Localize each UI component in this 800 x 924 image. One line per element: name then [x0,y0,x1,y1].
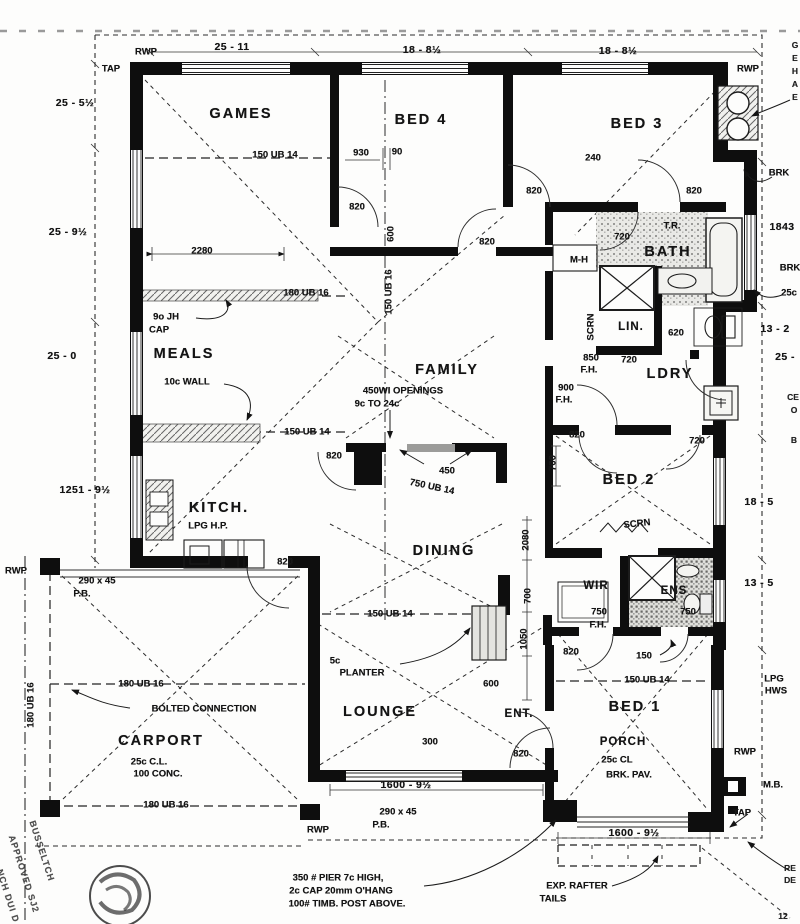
door-width-label: 620 [668,328,684,339]
dimension-label: 1843 [770,221,795,233]
room-label-porch: PORCH [600,736,647,748]
dimension-label: 750 [591,607,607,618]
room-label-bed2: BED 2 [603,472,656,488]
room-label-kitchen: KITCH. [189,500,249,516]
planter-note: PLANTER [340,668,385,679]
room-label-bed4: BED 4 [395,112,448,128]
dimension-label: 900 [558,383,574,394]
beam-note: 290 x 45 [79,576,116,587]
dimension-label: 600 [386,226,397,242]
pier-note: 2c CAP 20mm O'HANG [289,886,392,897]
beam-label: 180 UB 16 [26,682,37,727]
beam-label: 180 UB 16 [118,679,163,690]
dimension-label: 13 - 2 [760,323,789,335]
rwp-label: RWP [135,47,157,58]
rwp-label: RWP [737,64,759,75]
cap-note: CAP [149,325,169,336]
dimension-label: 25 - 0 [47,350,76,362]
door-width-label: 820 [479,237,495,248]
dimension-label: 2280 [191,246,212,257]
brk-note: BRK [780,263,800,274]
dimension-label: 750 [680,607,696,618]
dimension-label: 2080 [521,529,532,550]
room-label-bed3: BED 3 [611,116,664,132]
door-width-label: 820 [326,451,342,462]
porch-note: 25c CL [601,755,632,766]
dimension-label: 240 [585,153,601,164]
dimension-label: 1600 - 9½ [381,779,432,791]
room-label-linen: LIN. [618,321,644,333]
clipped-note: RE [784,863,796,873]
clipped-note: CE [787,392,799,402]
towel-rail-label: T.R. [664,221,681,232]
door-width-label: 820 [686,186,702,197]
rafter-note: EXP. RAFTER [546,881,608,892]
dimension-label: F.H. [590,620,607,631]
approval-stamp-text: NCH DUI D [0,868,21,924]
clipped-note: E [792,92,798,102]
clipped-note: B [791,435,797,445]
beam-label: 150 UB 14 [252,150,297,161]
dimension-label: 18 - 8½ [403,44,441,56]
beam-label: 180 UB 16 [283,288,328,299]
room-label-carport: CARPORT [118,733,204,749]
dimension-label: 25 - 11 [215,41,250,53]
beam-label: 150 UB 16 [384,269,395,314]
door-width-label: 820 [349,202,365,213]
rwp-label: RWP [5,566,27,577]
door-width-label: 720 [621,355,637,366]
rwp-label: RWP [734,747,756,758]
planter-note: 5c [330,656,341,667]
room-label-bath: BATH [644,244,691,260]
clipped-note: 25c [781,288,797,299]
mh-label: M-H [570,255,588,266]
beam-label: 150 UB 14 [367,609,412,620]
pier-note: 350 # PIER 7c HIGH, [293,873,384,884]
lpg-hws-label: HWS [765,686,787,697]
approval-stamp-text: BUSSELTCH [27,819,56,882]
dimension-label: 90 [392,147,403,158]
cap-note: 9o JH [153,312,179,323]
bolted-connection-note: BOLTED CONNECTION [152,704,257,715]
clipped-note: H [792,66,798,76]
screen-label: SCRN [623,517,651,531]
room-label-laundry: LDRY [647,366,694,382]
beam-label: 150 UB 14 [284,427,329,438]
door-width-label: 820 [563,647,579,658]
door-width-label: 720 [614,232,630,243]
door-width-label: 820 [569,430,585,441]
clipped-note: O [791,405,798,415]
lpg-note: LPG H.P. [188,521,227,532]
beam-note: P.B. [73,589,90,600]
dimension-label: 150 [636,651,652,662]
room-label-bed1: BED 1 [609,699,662,715]
rafter-note: TAILS [540,894,567,905]
brk-note: BRK [769,168,790,179]
dimension-label: 1251 - 9½ [60,484,111,496]
pier-note: 100# TIMB. POST ABOVE. [289,899,406,910]
door-width-label: 820 [513,749,529,760]
lpg-hws-label: LPG [764,674,784,685]
dimension-label: 25 - 9½ [49,226,87,238]
dimension-label: 600 [483,679,499,690]
dimension-label: F.H. [556,395,573,406]
dimension-label: 18 - 8½ [599,45,637,57]
clipped-note: DE [784,875,796,885]
room-label-lounge: LOUNGE [343,704,417,720]
dimension-label: 300 [422,737,438,748]
wall-note: 10c WALL [164,377,209,388]
room-label-entry: ENT. [505,708,534,720]
tap-label: TAP [102,64,120,75]
room-label-games: GAMES [209,106,272,122]
porch-note: BRK. PAV. [606,770,652,781]
openings-note: 9c TO 24c [355,399,400,410]
openings-note: 450WI OPENINGS [363,386,443,397]
clipped-note: E [792,53,798,63]
carport-note: 100 CONC. [133,769,182,780]
screen-label: SCRN [586,314,597,341]
dimension-label: 700 [548,455,559,471]
rwp-label: RWP [307,825,329,836]
room-label-ensuite: ENS [661,585,688,597]
beam-label: 150 UB 14 [624,675,669,686]
dimension-label: F.H. [581,365,598,376]
floor-plan-page: RWPTAP25 - 1118 - 8½18 - 8½RWPGEHAE25 - … [0,0,800,924]
room-label-wir: WIR [583,580,608,592]
door-width-label: 720 [689,436,705,447]
meter-box-label: M.B. [763,780,783,791]
dimension-label: 700 [523,588,534,604]
beam-label: 180 UB 16 [143,800,188,811]
annotation-layer: RWPTAP25 - 1118 - 8½18 - 8½RWPGEHAE25 - … [0,0,800,924]
carport-note: 25c C.L. [131,757,167,768]
dimension-label: 850 [583,353,599,364]
beam-label: 750 UB 14 [409,477,456,497]
dimension-label: 930 [353,148,369,159]
beam-note: P.B. [372,820,389,831]
dimension-label: 450 [439,466,455,477]
dimension-label: 18 - 5 [744,496,773,508]
door-width-label: 820 [526,186,542,197]
dimension-label: 25 - [775,351,795,363]
room-label-family: FAMILY [415,362,479,378]
dimension-label: 1050 [519,628,530,649]
dimension-label: 13 - 5 [744,577,773,589]
tap-label: TAP [733,808,751,819]
door-width-label: 820 [277,557,293,568]
dimension-label: 25 - 5½ [56,97,94,109]
clipped-note: G [792,40,799,50]
clipped-note: 12 [778,911,787,921]
room-label-meals: MEALS [154,346,215,362]
room-label-dining: DINING [413,543,476,559]
clipped-note: A [792,79,798,89]
beam-note: 290 x 45 [380,807,417,818]
dimension-label: 1600 - 9½ [609,827,660,839]
